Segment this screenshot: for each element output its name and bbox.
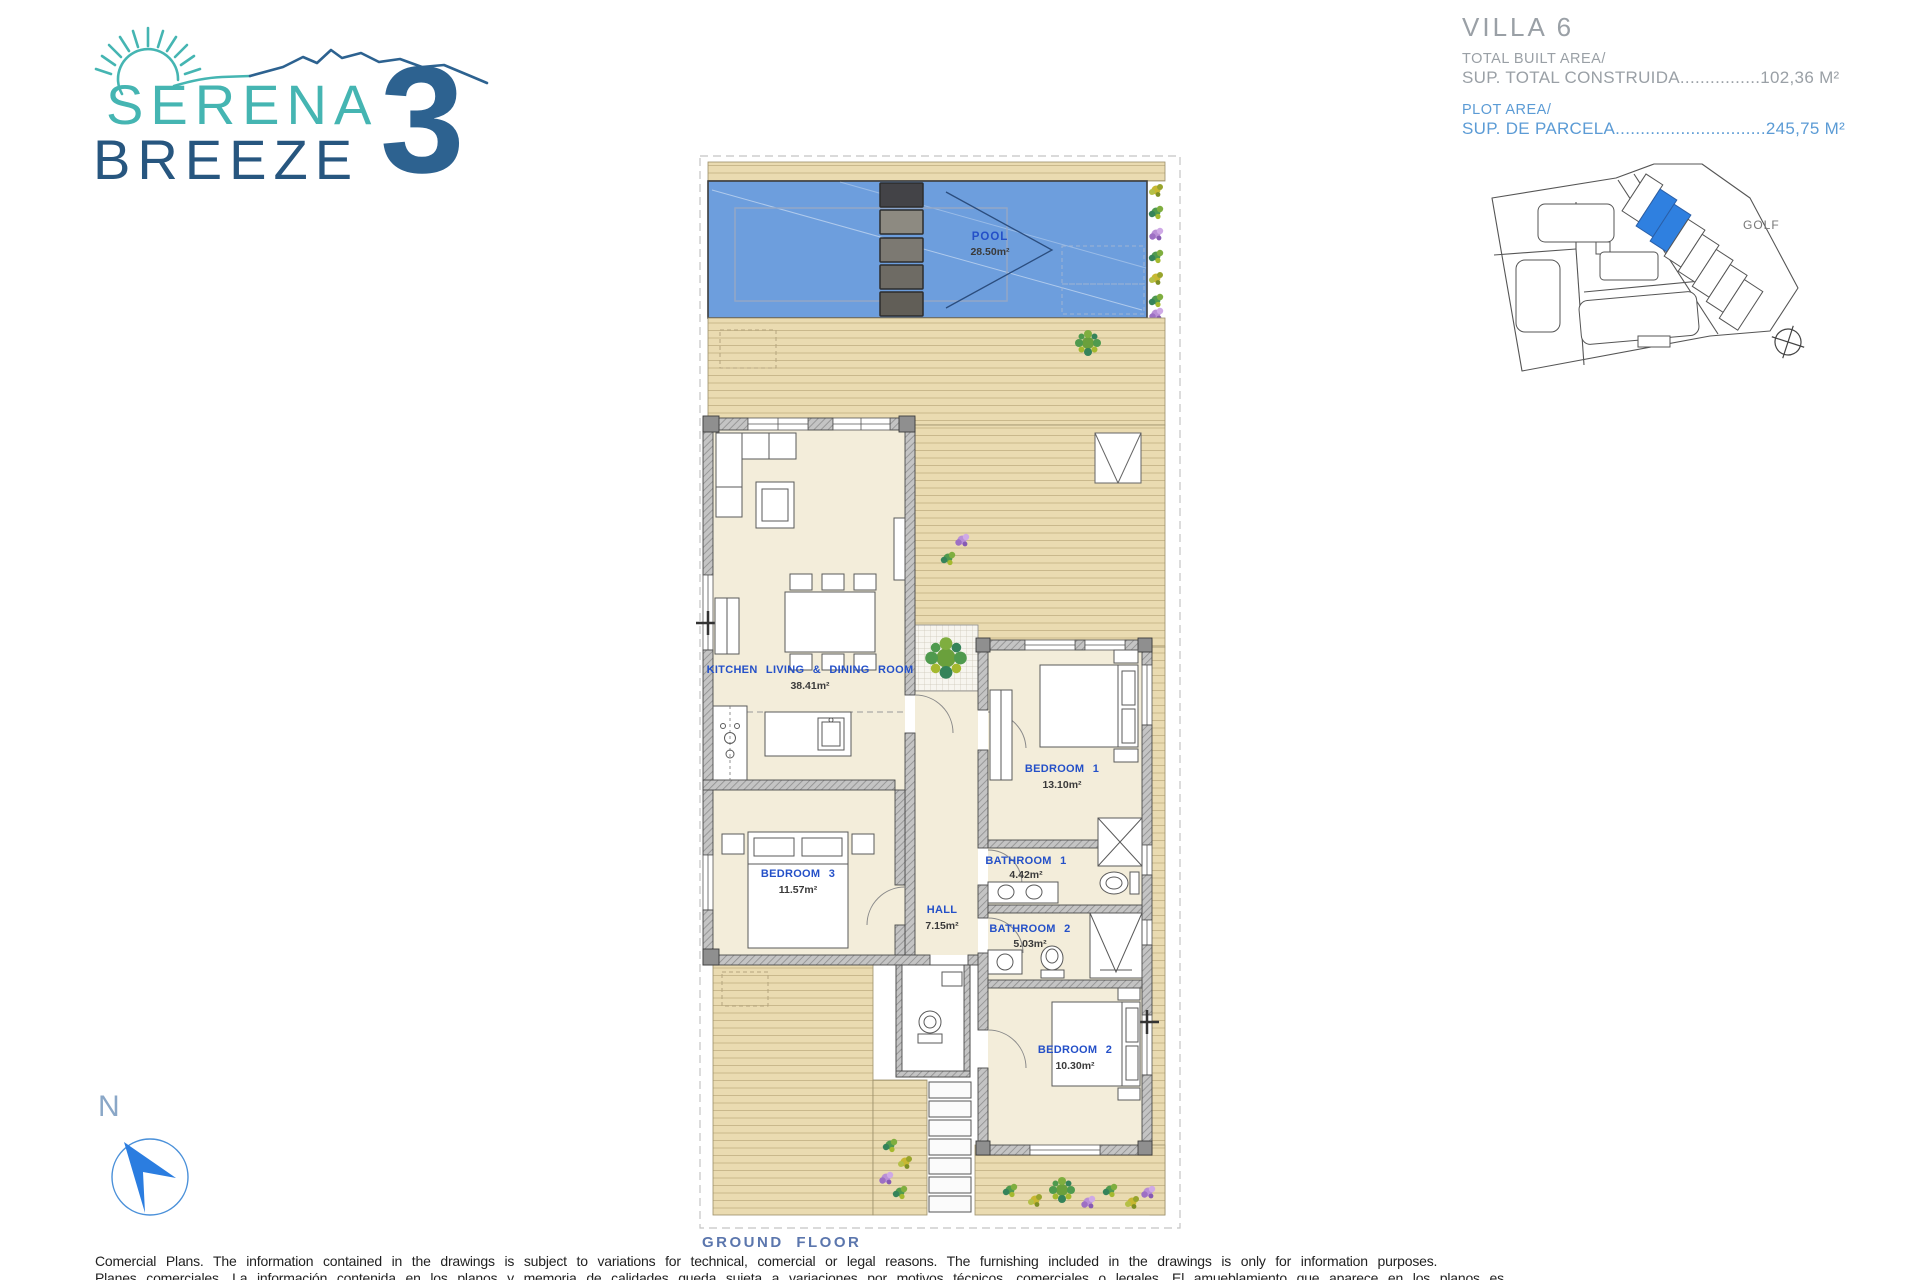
pool-area: POOL 28.50m²	[708, 181, 1147, 318]
villa-title: VILLA 6	[1462, 12, 1892, 43]
hall-area: 7.15m²	[925, 920, 959, 932]
north-label: N	[98, 1090, 120, 1123]
north-compass-icon: N	[88, 1082, 228, 1227]
site-building	[1600, 252, 1658, 280]
floorplan-sheet: { "logo": { "word1": "SERENA", "word2": …	[0, 0, 1920, 1280]
bathroom1-area: 4.42m²	[1009, 869, 1043, 881]
site-building	[1538, 204, 1614, 242]
bedroom1-area: 13.10m²	[1042, 779, 1082, 791]
disclaimer-line-es: Planes comerciales. La información conte…	[95, 1270, 1565, 1280]
floor-caption: GROUND FLOOR	[702, 1234, 861, 1251]
bedroom3-label: BEDROOM 3	[761, 868, 835, 880]
deck-hatch-detail	[1095, 433, 1141, 483]
exterior-wc	[896, 965, 970, 1077]
built-area-label: TOTAL BUILT AREA/	[1462, 51, 1892, 67]
plot-area-label: PLOT AREA/	[1462, 102, 1892, 118]
planting-strip	[1149, 184, 1163, 320]
logo-word-breeze: BREEZE	[93, 127, 359, 192]
deck-bottom-right	[975, 1145, 1165, 1215]
bedroom3-area: 11.57m²	[779, 884, 818, 896]
villa-info-block: VILLA 6 TOTAL BUILT AREA/ SUP. TOTAL CON…	[1462, 12, 1892, 139]
kitchen-area: 38.41m²	[790, 680, 830, 692]
deck-top-band	[708, 162, 1165, 181]
built-area-value: SUP. TOTAL CONSTRUIDA................102…	[1462, 68, 1892, 88]
site-building	[1638, 336, 1670, 347]
deck-bottom-left	[713, 960, 873, 1215]
logo-number-3: 3	[380, 44, 465, 196]
golf-label: GOLF	[1743, 218, 1780, 232]
bedroom2-label: BEDROOM 2	[1038, 1044, 1112, 1056]
pool-label: POOL	[972, 231, 1009, 243]
deck-terrace	[708, 318, 1165, 425]
bedroom1-label: BEDROOM 1	[1025, 763, 1099, 775]
kitchen-label: KITCHEN LIVING & DINING ROOM	[707, 664, 914, 676]
bathroom1-label: BATHROOM 1	[985, 855, 1066, 867]
bathroom2-area: 5.03m²	[1013, 938, 1047, 950]
pool-steps	[880, 183, 923, 316]
hall-label: HALL	[927, 904, 958, 916]
bathroom2-label: BATHROOM 2	[989, 923, 1070, 935]
north-arrow	[124, 1142, 176, 1213]
disclaimer-footer: Comercial Plans. The information contain…	[95, 1253, 1565, 1280]
pool-area-label: 28.50m²	[970, 246, 1010, 258]
disclaimer-line-en: Comercial Plans. The information contain…	[95, 1253, 1565, 1270]
site-building	[1516, 260, 1560, 332]
floor-plan: POOL 28.50m²	[690, 150, 1190, 1240]
bedroom2-area: 10.30m²	[1055, 1060, 1095, 1072]
site-plan-map: GOLF	[1488, 122, 1833, 380]
entrance-steps	[929, 1082, 971, 1212]
